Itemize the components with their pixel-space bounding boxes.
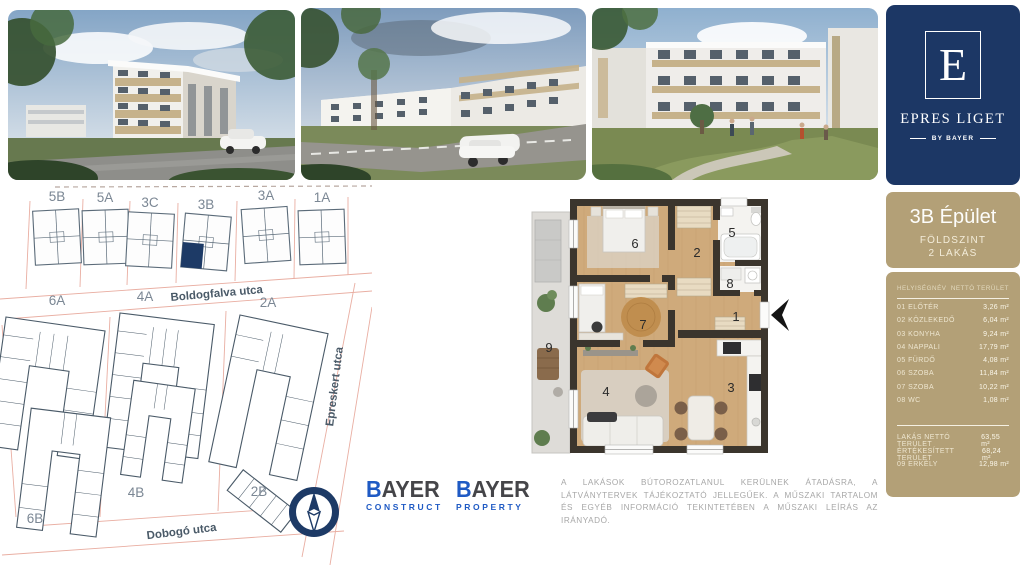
- bayer-rest: AYER: [472, 476, 530, 502]
- entry-closet: [715, 317, 745, 330]
- room-area: 3,26 m²: [983, 304, 1009, 311]
- building-block-3B-highlighted: [181, 213, 232, 271]
- building-block-5B: [33, 209, 82, 265]
- table-row: 06 SZOBA11,84 m²: [897, 370, 1009, 383]
- cooktop: [723, 342, 741, 354]
- byline-dash-right: [980, 138, 996, 139]
- room-name: 06 SZOBA: [897, 370, 934, 377]
- building-block-5A: [82, 209, 130, 265]
- street-south: Dobogó utca: [146, 522, 218, 543]
- table-row: 03 KONYHA9,24 m²: [897, 331, 1009, 344]
- building-block-3A: [241, 206, 291, 263]
- disclaimer-text: A LAKÁSOK BÚTOROZATLANUL KERÜLNEK ÁTADÁS…: [561, 477, 878, 528]
- render-1-illustration: [8, 10, 295, 180]
- room-area: 10,22 m²: [979, 384, 1009, 391]
- room-name: 01 ELŐTÉR: [897, 304, 939, 311]
- column-room-name: HELYISÉGNÉV: [897, 285, 946, 292]
- column-net-area: NETTÓ TERÜLET: [951, 285, 1009, 292]
- render-photo-2: [301, 8, 586, 180]
- brand-byline: BY BAYER: [910, 135, 996, 142]
- floor-plan: 1 2 3 4 5 6 7 8 9: [525, 190, 795, 460]
- room-name: 05 FÜRDŐ: [897, 357, 935, 364]
- label-1A: 1A: [314, 190, 331, 205]
- table-summary: LAKÁS NETTÓ TERÜLET63,55 m² ÉRTÉKESÍTETT…: [897, 434, 1009, 474]
- room-name: 02 KÖZLEKEDŐ: [897, 317, 955, 324]
- summary-label: ÉRTÉKESÍTETT TERÜLET: [897, 448, 982, 462]
- table-rows: 01 ELŐTÉR3,26 m² 02 KÖZLEKEDŐ6,04 m² 03 …: [897, 304, 1009, 410]
- brand-monogram: E: [939, 42, 967, 88]
- room-area: 4,08 m²: [983, 357, 1009, 364]
- summary-area: 12,98 m²: [979, 461, 1009, 468]
- table-row: 04 NAPPALI17,79 m²: [897, 344, 1009, 357]
- room-area: 9,24 m²: [983, 331, 1009, 338]
- room-label-9: 9: [545, 340, 552, 355]
- summary-row: ÉRTÉKESÍTETT TERÜLET68,24 m²: [897, 448, 1009, 461]
- label-6A: 6A: [49, 293, 66, 308]
- bayer-construct-sub: CONSTRUCT: [366, 503, 444, 512]
- room-name: 04 NAPPALI: [897, 344, 940, 351]
- label-3C: 3C: [141, 195, 159, 210]
- room-name: 08 WC: [897, 397, 921, 404]
- table-row: 02 KÖZLEKEDŐ6,04 m²: [897, 317, 1009, 330]
- room-label-6: 6: [631, 236, 638, 251]
- room-area: 17,79 m²: [979, 344, 1009, 351]
- building-block-4B: [121, 380, 196, 483]
- room-label-1: 1: [732, 309, 739, 324]
- table-row: 05 FÜRDŐ4,08 m²: [897, 357, 1009, 370]
- street-east: Epreskert utca: [324, 346, 346, 427]
- label-5A: 5A: [97, 190, 114, 205]
- unit-count-label: 2 LAKÁS: [886, 248, 1020, 259]
- area-table-card: HELYISÉGNÉV NETTÓ TERÜLET 01 ELŐTÉR3,26 …: [886, 272, 1020, 497]
- bayer-rest: AYER: [382, 476, 440, 502]
- plant-icon: [534, 430, 550, 446]
- brand-monogram-box: E: [925, 31, 981, 99]
- table-row: 07 SZOBA10,22 m²: [897, 384, 1009, 397]
- label-3A: 3A: [258, 188, 275, 203]
- room-label-3: 3: [727, 380, 734, 395]
- label-4B: 4B: [128, 485, 145, 500]
- summary-label: 09 ERKÉLY: [897, 461, 938, 468]
- entrance-arrow-icon: [771, 299, 789, 331]
- room-area: 11,84 m²: [979, 370, 1009, 377]
- summary-row: 09 ERKÉLY12,98 m²: [897, 461, 1009, 474]
- floor-label: FÖLDSZINT: [886, 235, 1020, 246]
- highlighted-unit-marker: [181, 242, 204, 269]
- summary-row: LAKÁS NETTÓ TERÜLET63,55 m²: [897, 434, 1009, 447]
- summary-area: 63,55 m²: [981, 434, 1009, 448]
- render-2-illustration: [301, 8, 586, 180]
- table-row: 08 WC1,08 m²: [897, 397, 1009, 410]
- room-label-8: 8: [726, 276, 733, 291]
- room-label-5: 5: [728, 225, 735, 240]
- table-header: HELYISÉGNÉV NETTÓ TERÜLET: [897, 285, 1009, 299]
- render-photo-1: [8, 10, 295, 180]
- street-north: Boldogfalva utca: [170, 284, 264, 304]
- label-3B: 3B: [198, 197, 215, 212]
- building-block-2A: [209, 315, 328, 480]
- room-label-7: 7: [639, 317, 646, 332]
- bayer-initial: B: [456, 476, 472, 502]
- table-divider: [897, 425, 1009, 426]
- site-boundary-line: [55, 186, 372, 187]
- terrace: [532, 212, 570, 453]
- label-5B: 5B: [49, 189, 66, 204]
- bayer-initial: B: [366, 476, 382, 502]
- brand-name: EPRES LIGET: [900, 111, 1006, 128]
- bedroom1-furniture: [587, 204, 659, 268]
- brochure-page: { "brand": { "letter": "E", "name": "EPR…: [0, 0, 1024, 576]
- byline-text: BY BAYER: [932, 135, 974, 142]
- room-area: 1,08 m²: [983, 397, 1009, 404]
- brand-logo-card: E EPRES LIGET BY BAYER: [886, 5, 1020, 185]
- bayer-property-logo: BAYER PROPERTY: [456, 478, 534, 512]
- room-label-2: 2: [693, 245, 700, 260]
- summary-area: 68,24 m²: [982, 448, 1009, 462]
- bayer-property-wordmark: BAYER: [456, 478, 530, 501]
- room-label-4: 4: [602, 384, 609, 399]
- label-2B: 2B: [251, 484, 268, 499]
- byline-dash-left: [910, 138, 926, 139]
- compass-icon: [287, 485, 341, 539]
- dining-table: [688, 396, 714, 440]
- label-2A: 2A: [260, 295, 277, 310]
- table-row: 01 ELŐTÉR3,26 m²: [897, 304, 1009, 317]
- room-area: 6,04 m²: [983, 317, 1009, 324]
- desk-chair: [592, 322, 603, 333]
- room-name: 03 KONYHA: [897, 331, 940, 338]
- label-4A: 4A: [137, 289, 154, 304]
- bayer-property-sub: PROPERTY: [456, 503, 534, 512]
- render-3-illustration: [592, 8, 878, 180]
- room-name: 07 SZOBA: [897, 384, 934, 391]
- building-title: 3B Épület: [886, 206, 1020, 229]
- render-photo-3: [592, 8, 878, 180]
- bayer-construct-wordmark: BAYER: [366, 478, 440, 501]
- unit-title-card: 3B Épület FÖLDSZINT 2 LAKÁS: [886, 192, 1020, 268]
- building-block-3C: [126, 212, 175, 268]
- bayer-construct-logo: BAYER CONSTRUCT: [366, 478, 444, 512]
- summary-label: LAKÁS NETTÓ TERÜLET: [897, 434, 981, 448]
- building-block-1A: [298, 209, 346, 265]
- label-6B: 6B: [27, 511, 44, 526]
